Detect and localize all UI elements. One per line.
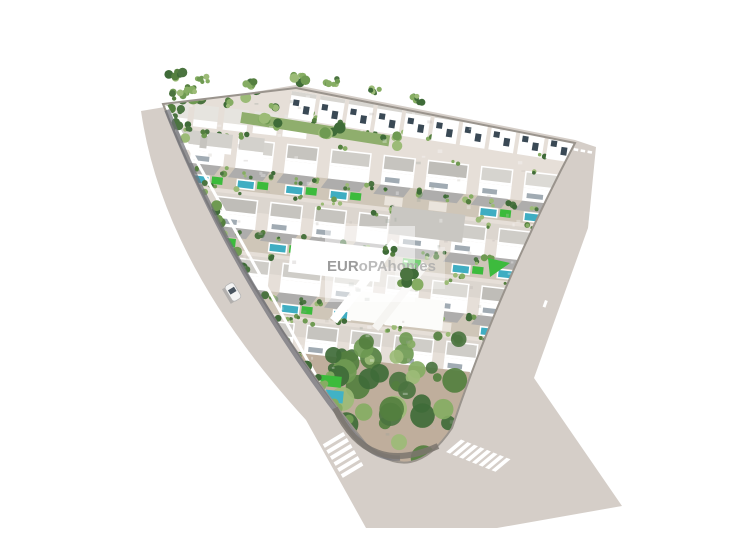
svg-text:EURoPAhomes: EURoPAhomes (327, 258, 436, 275)
